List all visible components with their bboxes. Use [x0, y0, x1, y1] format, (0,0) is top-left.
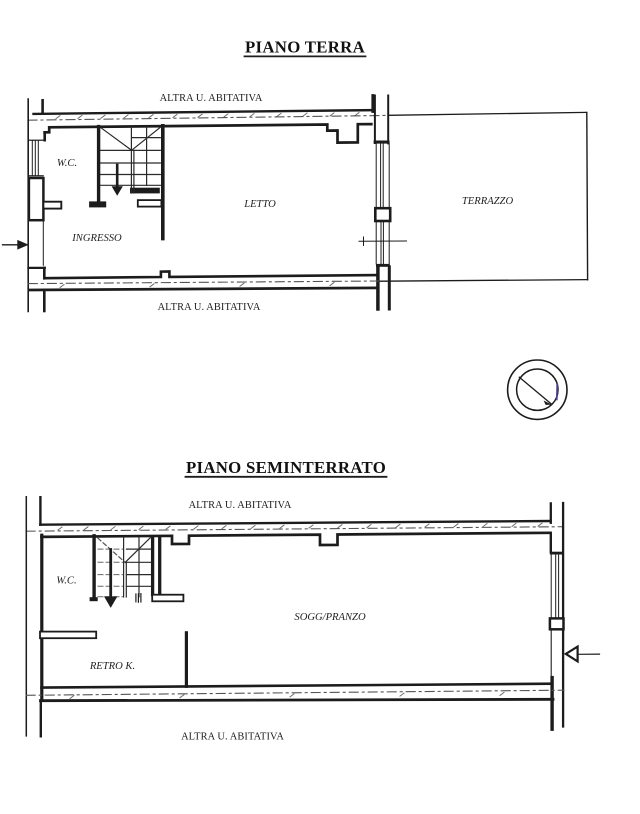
svg-text:SOGG/PRANZO: SOGG/PRANZO	[294, 612, 366, 623]
svg-text:INGRESSO: INGRESSO	[71, 233, 122, 244]
svg-text:RETRO K.: RETRO K.	[89, 661, 135, 672]
svg-text:ALTRA U. ABITATIVA: ALTRA U. ABITATIVA	[181, 732, 284, 743]
svg-text:TERRAZZO: TERRAZZO	[462, 196, 514, 207]
svg-text:ALTRA U. ABITATIVA: ALTRA U. ABITATIVA	[158, 302, 261, 313]
svg-text:W.C.: W.C.	[56, 576, 76, 587]
svg-text:PIANO SEMINTERRATO: PIANO SEMINTERRATO	[186, 458, 386, 477]
svg-text:ALTRA U. ABITATIVA: ALTRA U. ABITATIVA	[160, 93, 263, 104]
svg-text:W.C.: W.C.	[57, 158, 77, 169]
svg-text:ALTRA U. ABITATIVA: ALTRA U. ABITATIVA	[189, 500, 292, 511]
svg-text:LETTO: LETTO	[243, 199, 276, 210]
svg-text:PIANO TERRA: PIANO TERRA	[245, 38, 365, 57]
